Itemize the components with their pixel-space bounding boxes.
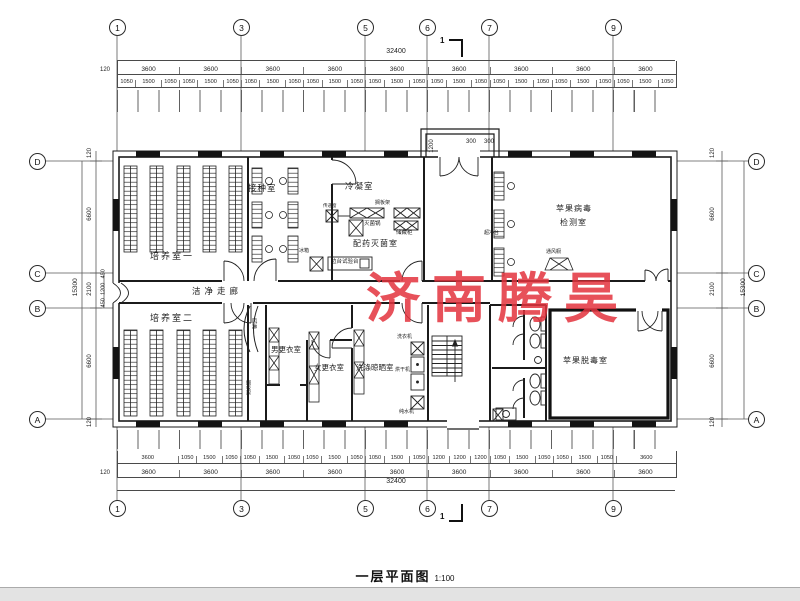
- dim-label: 1050: [409, 80, 427, 87]
- dim-label: 1050: [347, 456, 365, 463]
- fixture-label-shelf2: 搁板架: [245, 380, 250, 395]
- dim-label: 3600: [303, 67, 365, 75]
- dim-porch-a: 300: [466, 139, 476, 145]
- axis-left-B: B: [29, 300, 46, 317]
- dim-left-4: 120: [87, 407, 93, 437]
- axis-bottom-6: 6: [419, 500, 436, 517]
- axis-label: D: [753, 157, 759, 167]
- dim-label: 1050: [240, 456, 258, 463]
- dim-extension-lines-bottom: [117, 430, 675, 449]
- dim-label: 1050: [179, 80, 197, 87]
- dim-label: 1200: [428, 456, 449, 463]
- dim-label: 3600: [428, 67, 490, 75]
- dim-label: 1050: [178, 456, 196, 463]
- axis-label: 1: [115, 504, 120, 514]
- axis-right-C: C: [748, 265, 765, 282]
- room-label-culture1: 培养室一: [150, 252, 194, 261]
- axis-left-C: C: [29, 265, 46, 282]
- dim-label: 3600: [241, 67, 303, 75]
- section-mark-bottom-label: 1: [440, 512, 444, 521]
- axis-label: 6: [425, 504, 430, 514]
- dim-label: 1050: [223, 80, 241, 87]
- axis-top-6: 6: [419, 19, 436, 36]
- dim-label: 1050: [365, 456, 383, 463]
- fixture-label-airshower: 风淋: [250, 318, 256, 329]
- fixture-label-sterilizer: 灭菌锅: [364, 222, 381, 228]
- dim-label: 1050: [284, 456, 302, 463]
- axis-label: 7: [487, 23, 492, 33]
- axis-label: 6: [425, 23, 430, 33]
- dim-label: 3600: [616, 456, 677, 463]
- axis-bottom-5: 5: [357, 500, 374, 517]
- axis-label: 3: [239, 504, 244, 514]
- fixture-label-dryer: 烘干机: [395, 368, 410, 373]
- room-label-men-change: 男更衣室: [271, 346, 301, 354]
- dim-porch-b: 300: [484, 139, 494, 145]
- axis-top-5: 5: [357, 19, 374, 36]
- dim-left-total: 15300: [73, 272, 80, 302]
- dim-label: 1500: [509, 456, 535, 463]
- dim-right-2: 2100: [710, 274, 716, 304]
- dim-label: 3600: [179, 470, 241, 478]
- room-label-prep: 配药灭菌室: [353, 240, 398, 248]
- dim-label: 3600: [428, 470, 490, 478]
- dim-right-4: 120: [710, 407, 716, 437]
- dim-label: 1500: [196, 456, 222, 463]
- axis-left-D: D: [29, 153, 46, 170]
- room-label-women-change: 女更衣室: [314, 364, 344, 372]
- axis-right-B: B: [748, 300, 765, 317]
- axis-label: 3: [239, 23, 244, 33]
- fixture-label-purifier: 纯水机: [399, 410, 414, 415]
- watermark-text: 济南腾昊: [366, 254, 630, 333]
- axis-label: 1: [115, 23, 120, 33]
- dim-bottom-total: 32400: [117, 478, 675, 491]
- floor-plan-page: { "watermark": "济南腾昊", "title": { "text"…: [0, 0, 800, 600]
- dim-label: 1500: [508, 80, 534, 87]
- dim-label: 1500: [632, 80, 658, 87]
- dim-label: 1050: [303, 80, 321, 87]
- fixture-label-cabinet: 储藏柜: [396, 231, 413, 237]
- dim-label: 3600: [241, 470, 303, 478]
- axis-label: A: [754, 415, 760, 425]
- dim-left-1: 6600: [87, 199, 93, 229]
- dim-label: 1050: [471, 80, 489, 87]
- dim-top-edge: 120: [100, 67, 110, 73]
- dim-label: 1050: [490, 456, 508, 463]
- dim-right-3: 6600: [710, 346, 716, 376]
- dim-label: 1500: [197, 80, 223, 87]
- axis-right-A: A: [748, 411, 765, 428]
- dim-label: 1200: [449, 456, 470, 463]
- dim-top-sub: 1050150010501050150010501050150010501050…: [117, 75, 677, 88]
- washing-room-equipment: [411, 342, 424, 409]
- fixture-label-bench: 边台试验台: [331, 260, 359, 266]
- axis-label: 5: [363, 23, 368, 33]
- dim-bottom-edge: 120: [100, 470, 110, 476]
- dim-label: 1050: [552, 80, 570, 87]
- axis-label: 7: [487, 504, 492, 514]
- fixture-label-fridge: 冰箱: [299, 249, 309, 254]
- staircase: [432, 336, 462, 382]
- dim-label: 1050: [222, 456, 240, 463]
- dim-label: 1050: [303, 456, 321, 463]
- axis-label: D: [34, 157, 40, 167]
- dim-label: 1050: [614, 80, 632, 87]
- fixture-label-cleanbench: 超净台: [484, 231, 499, 236]
- fixture-label-pass: 传递窗: [323, 204, 337, 209]
- axis-bottom-9: 9: [605, 500, 622, 517]
- room-label-culture2: 培养室二: [150, 314, 194, 323]
- dim-label: 1050: [365, 80, 383, 87]
- axis-top-3: 3: [233, 19, 250, 36]
- axis-bottom-7: 7: [481, 500, 498, 517]
- dim-porch-depth: 1200: [429, 131, 435, 161]
- dim-label: 3600: [490, 67, 552, 75]
- dim-right-1: 6600: [710, 199, 716, 229]
- axis-label: A: [35, 415, 41, 425]
- dim-extension-lines-top: [117, 90, 675, 112]
- axis-bottom-3: 3: [233, 500, 250, 517]
- room-label-washing: 洗涤晾晒室: [356, 364, 394, 372]
- axis-top-1: 1: [109, 19, 126, 36]
- dim-label: 1500: [322, 80, 348, 87]
- dim-label: 1500: [259, 456, 285, 463]
- axis-left-A: A: [29, 411, 46, 428]
- dim-left-inner-2: 450: [101, 288, 107, 318]
- dim-label: 1050: [409, 456, 427, 463]
- dim-label: 1050: [597, 456, 615, 463]
- fixture-label-washer: 洗衣机: [397, 335, 412, 340]
- axis-right-D: D: [748, 153, 765, 170]
- dim-label: 3600: [552, 470, 614, 478]
- axis-top-7: 7: [481, 19, 498, 36]
- room-label-detect-2: 检测室: [560, 219, 587, 227]
- dim-label: 1500: [259, 80, 285, 87]
- dim-label: 1500: [135, 80, 161, 87]
- dim-label: 1500: [384, 80, 410, 87]
- dim-top-total: 32400: [117, 48, 675, 61]
- axis-label: 5: [363, 504, 368, 514]
- drawing-title: 一层平面图: [355, 569, 430, 584]
- axis-label: 9: [611, 504, 616, 514]
- page-bottom-strip: [0, 587, 800, 601]
- axis-label: 9: [611, 23, 616, 33]
- axis-bottom-1: 1: [109, 500, 126, 517]
- room-label-detox: 苹果脱毒室: [563, 357, 608, 365]
- dim-label: 1500: [571, 456, 597, 463]
- room-label-detect-1: 苹果病毒: [556, 205, 592, 213]
- dim-label: 3600: [365, 470, 427, 478]
- dim-right-total: 15300: [741, 272, 748, 302]
- dim-left-3: 6600: [87, 346, 93, 376]
- dim-label: 1050: [658, 80, 676, 87]
- dim-label: 3600: [614, 67, 676, 75]
- dim-label: 1050: [285, 80, 303, 87]
- dim-label: 1050: [241, 80, 259, 87]
- dim-label: 1050: [490, 80, 508, 87]
- dim-label: 3600: [552, 67, 614, 75]
- dim-label: 1200: [470, 456, 491, 463]
- fixture-label-shelf: 搁板架: [375, 201, 390, 206]
- drawing-scale: 1:100: [434, 574, 454, 583]
- axis-label: B: [754, 304, 760, 314]
- dim-label: 1050: [161, 80, 179, 87]
- dim-label: 3600: [179, 67, 241, 75]
- dim-label: 3600: [490, 470, 552, 478]
- dim-label: 1050: [118, 80, 135, 87]
- dim-top-bays: 360036003600360036003600360036003600: [117, 61, 677, 75]
- axis-top-9: 9: [605, 19, 622, 36]
- dim-left-0: 120: [87, 138, 93, 168]
- dim-right-0: 120: [710, 138, 716, 168]
- dim-label: 3600: [118, 67, 179, 75]
- dim-label: 1050: [347, 80, 365, 87]
- dim-label: 1500: [570, 80, 596, 87]
- dim-label: 3600: [303, 470, 365, 478]
- dim-label: 1050: [427, 80, 445, 87]
- room-label-inoculation: 接种室: [248, 184, 277, 193]
- dim-label: 3600: [118, 470, 179, 478]
- dim-label: 1050: [535, 456, 553, 463]
- dim-bottom-bays: 360036003600360036003600360036003600: [117, 464, 677, 478]
- dim-label: 1500: [384, 456, 410, 463]
- room-label-corridor: 洁净走廊: [192, 287, 242, 296]
- dim-label: 1050: [553, 456, 571, 463]
- dim-label: 1050: [596, 80, 614, 87]
- dim-label: 1500: [321, 456, 347, 463]
- dim-label: 3600: [365, 67, 427, 75]
- dim-label: 1500: [446, 80, 472, 87]
- axis-label: C: [753, 269, 759, 279]
- axis-label: C: [34, 269, 40, 279]
- dim-bottom-sub: 3600105015001050105015001050105015001050…: [117, 451, 677, 464]
- dim-label: 3600: [614, 470, 676, 478]
- axis-label: B: [35, 304, 41, 314]
- dim-label: 3600: [118, 456, 178, 463]
- dim-left-2: 2100: [87, 274, 93, 304]
- dim-label: 1050: [533, 80, 551, 87]
- room-label-cooling: 冷凝室: [345, 182, 374, 191]
- section-mark-top-label: 1: [440, 36, 444, 45]
